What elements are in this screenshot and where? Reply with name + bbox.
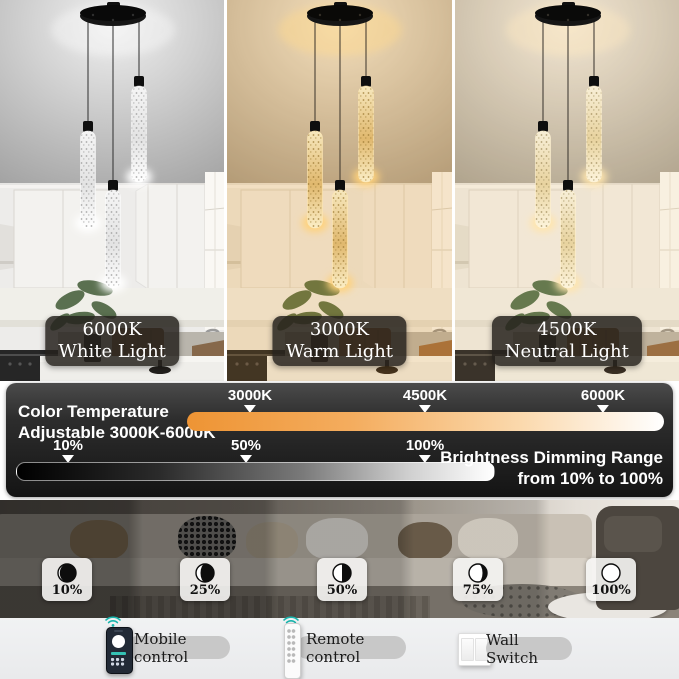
temp-mode: Warm Light [286,341,393,363]
remote-icon [284,623,301,679]
panel-neutral-light: 4500K Neutral Light [455,0,679,381]
temp-tick-6000k: 6000K [581,388,625,413]
brightness-badge-75: 75% [453,558,503,601]
brightness-badge-50: 50% [317,558,367,601]
color-temperature-panels: 6000K White Light [0,0,679,381]
brightness-moon-icon [194,562,216,584]
color-temp-title: Color Temperature Adjustable 3000K-6000K [18,401,215,443]
panel-white-light: 6000K White Light [0,0,224,381]
brightness-moon-icon [56,562,78,584]
wall-switch-label: Wall Switch [486,637,572,660]
brightness-badge-25: 25% [180,558,230,601]
color-temp-label: 6000K White Light [45,316,179,366]
temp-tick-3000k: 3000K [228,388,272,413]
brightness-badge-10: 10% [42,558,92,601]
dim-tick-10: 10% [53,438,83,463]
remote-control-label: Remote control [296,636,406,659]
brightness-badge-100: 100% [586,558,636,601]
temp-value: 3000K [286,319,393,341]
mobile-control-label: Mobile control [126,636,230,659]
dim-tick-50: 50% [231,438,261,463]
temp-mode: Neutral Light [505,341,629,363]
color-temperature-gradient-bar [187,412,664,431]
dimming-range-caption: Brightness Dimming Range from 10% to 100… [440,447,663,489]
wifi-icon [104,614,122,627]
brightness-gradient-bar [16,462,495,481]
brightness-moon-icon [600,562,622,584]
color-temp-label: 3000K Warm Light [273,316,406,366]
smartphone-icon [106,627,133,674]
temp-value: 6000K [58,319,166,341]
feature-banner: Color Temperature Adjustable 3000K-6000K… [6,383,673,497]
panel-warm-light: 3000K Warm Light [227,0,451,381]
brightness-moon-icon [467,562,489,584]
product-infographic: 6000K White Light [0,0,679,679]
temp-mode: White Light [58,341,166,363]
color-temp-label: 4500K Neutral Light [492,316,642,366]
brightness-demo-strip: 10% 25% 50% 75% 100% [0,500,679,618]
control-methods-row: Mobile control Remote control Wall Switc… [0,618,679,679]
brightness-moon-icon [331,562,353,584]
temp-value: 4500K [505,319,629,341]
dim-tick-100: 100% [406,438,444,463]
temp-tick-4500k: 4500K [403,388,447,413]
